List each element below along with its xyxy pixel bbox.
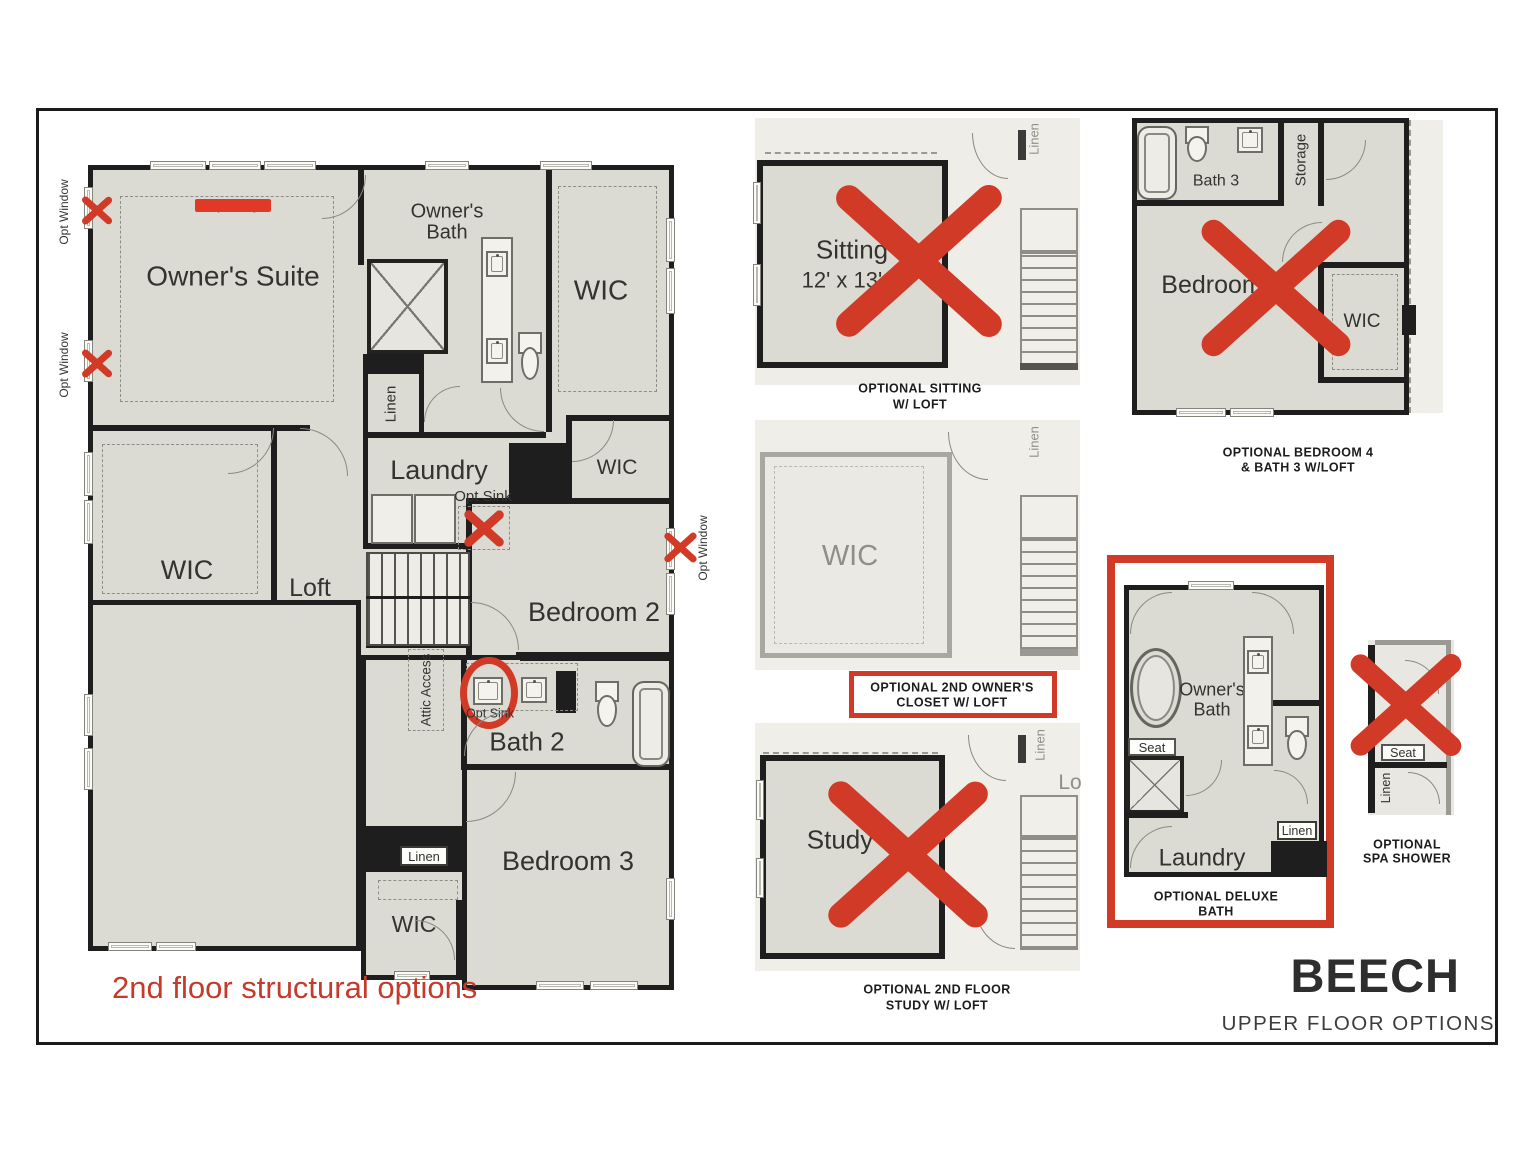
seat-box: Seat	[1128, 738, 1176, 756]
option-caption-line1: OPTIONAL BEDROOM 4	[1223, 446, 1374, 459]
option-caption-line1: OPTIONAL 2ND OWNER'S	[870, 681, 1034, 694]
bathtub	[1137, 126, 1177, 200]
wall-black-fill	[1271, 841, 1327, 877]
red-x-mark	[822, 778, 994, 930]
red-x-mark	[663, 530, 697, 564]
option-caption-line1: OPTIONAL DELUXE	[1154, 890, 1279, 903]
toilet	[592, 681, 618, 727]
linen-label: Linen	[1380, 773, 1393, 804]
wall	[271, 425, 277, 605]
window	[1230, 408, 1274, 417]
red-x-mark	[1347, 647, 1465, 763]
opt-window-label: Opt Window	[697, 515, 709, 580]
wall	[1124, 812, 1188, 818]
laundry-label: Laundry	[390, 456, 488, 484]
option-caption-line2: & BATH 3 W/LOFT	[1241, 461, 1355, 474]
wall	[1020, 363, 1078, 370]
red-x-mark	[81, 194, 113, 226]
linen-label: Linen	[384, 386, 399, 423]
wall	[363, 354, 424, 374]
red-x-mark	[1196, 212, 1356, 364]
window	[425, 161, 469, 170]
wall	[363, 432, 546, 438]
plan-title: BEECH	[1240, 948, 1460, 1003]
spa-shower	[1126, 756, 1184, 814]
owners-bath-label-line1: Owner's	[411, 202, 484, 223]
red-strikethrough	[195, 199, 271, 212]
option-caption-line2: BATH	[1198, 905, 1233, 918]
window	[536, 981, 584, 990]
faded-dashed-wall	[763, 752, 938, 754]
stairs	[1020, 252, 1078, 367]
wall-black-core	[509, 443, 566, 503]
window	[150, 161, 206, 170]
linen-box: Linen	[1277, 821, 1317, 840]
wall	[363, 438, 368, 548]
main-plan-loft-block	[88, 600, 361, 951]
loft-partial-label: Lo	[1058, 772, 1081, 794]
wall	[566, 498, 674, 504]
wall	[1273, 700, 1324, 706]
window	[756, 780, 764, 820]
wall	[456, 900, 462, 979]
window	[753, 264, 761, 306]
closet-shelving	[378, 880, 458, 900]
wall	[1318, 377, 1406, 383]
faded-context	[1409, 120, 1443, 413]
option-caption-line2: STUDY W/ LOFT	[886, 999, 988, 1012]
wall	[1020, 649, 1078, 656]
stairs	[1020, 837, 1078, 950]
opt-window-label: Opt Window	[58, 332, 70, 397]
toilet	[516, 332, 540, 380]
deluxe-owners-bath-line1: Owner's	[1179, 681, 1244, 700]
owners-suite-label: Owner's Suite	[146, 261, 319, 290]
window	[156, 942, 196, 951]
wic-closet-label: WIC	[822, 541, 878, 571]
window	[666, 878, 675, 920]
wall	[363, 374, 368, 437]
wic-lower-label: WIC	[161, 556, 213, 584]
linen-label: Linen	[1279, 824, 1315, 838]
stairs	[366, 552, 470, 646]
wall	[1018, 130, 1026, 160]
toilet	[1282, 716, 1308, 760]
window	[84, 694, 93, 736]
opt-window-label: Opt Window	[58, 179, 70, 244]
faded-dashed-wall	[765, 152, 937, 154]
opt-sink-label: Opt Sink	[454, 489, 512, 505]
dryer	[414, 494, 456, 544]
window	[540, 161, 592, 170]
bath3-label: Bath 3	[1193, 174, 1239, 191]
soaking-tub	[1130, 648, 1182, 728]
window	[84, 500, 93, 544]
wall	[419, 374, 424, 437]
floor-plan-sheet: Opt Window Opt Window Opt Window Opt Tra…	[0, 0, 1536, 1152]
red-x-mark	[463, 507, 505, 549]
wall	[1318, 118, 1324, 206]
stair-rail	[366, 596, 470, 599]
window	[666, 268, 675, 314]
linen-label: Linen	[1034, 729, 1047, 761]
toilet	[1182, 126, 1208, 162]
bathtub	[632, 681, 670, 767]
tray-ceiling-outline	[120, 196, 334, 402]
bedroom3-label: Bedroom 3	[502, 847, 634, 875]
window	[84, 748, 93, 790]
wall	[520, 655, 674, 661]
sink	[486, 251, 508, 277]
attic-access-label: Attic Access	[419, 654, 433, 727]
option-caption-line2: CLOSET W/ LOFT	[896, 696, 1007, 709]
deluxe-owners-bath-line2: Bath	[1193, 701, 1230, 720]
window	[666, 573, 675, 615]
wall	[1132, 200, 1283, 206]
linen-hall-label: Linen	[402, 849, 446, 864]
window	[1188, 581, 1234, 590]
window	[756, 858, 764, 898]
shower	[367, 259, 448, 354]
stair-landing	[1020, 795, 1078, 837]
window	[84, 452, 93, 496]
wall	[1278, 118, 1284, 206]
stair-landing	[1020, 495, 1078, 539]
storage-label: Storage	[1294, 134, 1309, 187]
stairs	[1020, 539, 1078, 651]
seat-label: Seat	[1130, 740, 1174, 755]
sink	[1247, 650, 1269, 674]
option-caption-line1: OPTIONAL 2ND FLOOR	[863, 983, 1010, 996]
window	[1176, 408, 1226, 417]
loft-label: Loft	[289, 575, 331, 601]
option-caption-line2: SPA SHOWER	[1363, 852, 1451, 865]
wic-bedroom2-label: WIC	[597, 457, 638, 479]
washer	[371, 494, 413, 544]
sink	[486, 338, 508, 364]
footnote: 2nd floor structural options	[112, 970, 477, 1006]
red-x-mark	[81, 347, 113, 379]
window	[108, 942, 152, 951]
plan-subtitle: UPPER FLOOR OPTIONS	[1150, 1012, 1495, 1036]
window	[753, 182, 761, 224]
bedroom2-label: Bedroom 2	[528, 598, 660, 626]
red-x-mark	[830, 182, 1008, 340]
sink	[1247, 725, 1269, 749]
wall	[546, 170, 552, 432]
sink	[521, 677, 547, 703]
option-caption-line1: OPTIONAL	[1373, 838, 1441, 851]
wall	[1375, 640, 1450, 645]
window	[209, 161, 261, 170]
stair-landing	[1020, 208, 1078, 252]
linen-label: Linen	[1028, 123, 1041, 155]
wic-owner-label: WIC	[574, 275, 628, 304]
linen-label: Linen	[1028, 426, 1041, 458]
wall	[1018, 735, 1026, 763]
linen-hall-box: Linen	[400, 846, 448, 866]
sink	[1237, 127, 1263, 153]
window	[666, 218, 675, 262]
window	[590, 981, 638, 990]
wall	[1402, 305, 1416, 335]
deluxe-laundry-label: Laundry	[1159, 845, 1246, 870]
window	[264, 161, 316, 170]
owners-bath-label-line2: Bath	[426, 223, 467, 244]
option-caption-line2: W/ LOFT	[893, 398, 947, 411]
option-caption-line1: OPTIONAL SITTING	[858, 382, 982, 395]
